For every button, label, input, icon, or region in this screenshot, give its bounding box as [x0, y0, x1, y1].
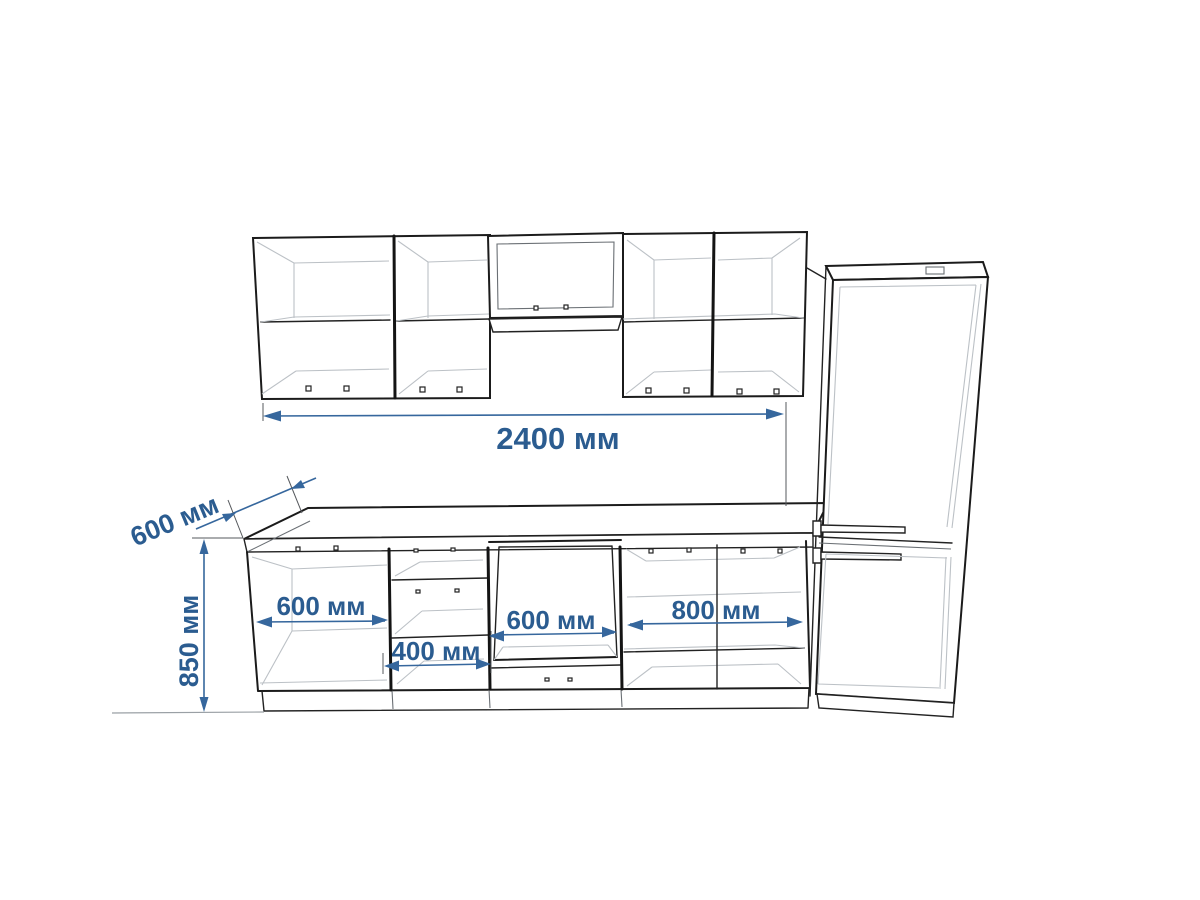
hinge-mark	[457, 387, 462, 392]
dimension-base-cabinet-left: 600 мм	[256, 591, 388, 628]
dimension-base-cabinet-right: 800 мм	[627, 595, 803, 631]
dim-label-worktop-height: 850 мм	[174, 595, 204, 688]
fridge-lower-handle-bracket	[813, 548, 821, 563]
dim-label-base-cabinet-right: 800 мм	[671, 595, 760, 625]
fridge-silhouette-edge	[807, 268, 826, 279]
fridge-display	[926, 267, 944, 274]
wall-cabinet-left-pair	[253, 235, 490, 399]
wall-cabinets	[253, 232, 807, 399]
refrigerator	[807, 262, 988, 717]
hinge-mark	[344, 386, 349, 391]
fridge-upper-handle-bracket	[813, 521, 821, 536]
countertop	[244, 503, 828, 552]
hinge-mark	[534, 306, 538, 310]
dim-label-oven-cabinet: 600 мм	[506, 605, 595, 635]
dimension-drawer-cabinet: 400 мм	[383, 631, 491, 674]
wall-cabinet-right-pair	[623, 232, 807, 397]
wall-cabinet-hood	[488, 233, 623, 332]
hinge-mark	[774, 389, 779, 394]
dimension-worktop-height: 850 мм	[174, 538, 243, 712]
fridge-front	[816, 277, 988, 703]
hinge-mark	[646, 388, 651, 393]
kitchen-drawing-canvas: 2400 мм 600 мм 850 мм 600 мм 400 мм 600	[0, 0, 1200, 900]
dim-label-base-cabinet-left: 600 мм	[276, 591, 365, 621]
dimension-total-width: 2400 мм	[263, 402, 786, 506]
dimension-oven-cabinet: 600 мм	[489, 605, 617, 642]
hinge-mark	[420, 387, 425, 392]
fridge-upper-handle	[821, 525, 905, 533]
hinge-mark	[684, 388, 689, 393]
dim-label-worktop-depth: 600 мм	[126, 489, 223, 552]
dim-label-drawer-cabinet: 400 мм	[391, 636, 480, 666]
floor-line	[112, 712, 264, 713]
hinge-mark	[564, 305, 568, 309]
hinge-mark	[306, 386, 311, 391]
base-cabinets	[112, 540, 810, 713]
kitchen-elevation-svg: 2400 мм 600 мм 850 мм 600 мм 400 мм 600	[0, 0, 1200, 900]
hinge-mark	[737, 389, 742, 394]
dim-label-total-width: 2400 мм	[496, 421, 619, 456]
